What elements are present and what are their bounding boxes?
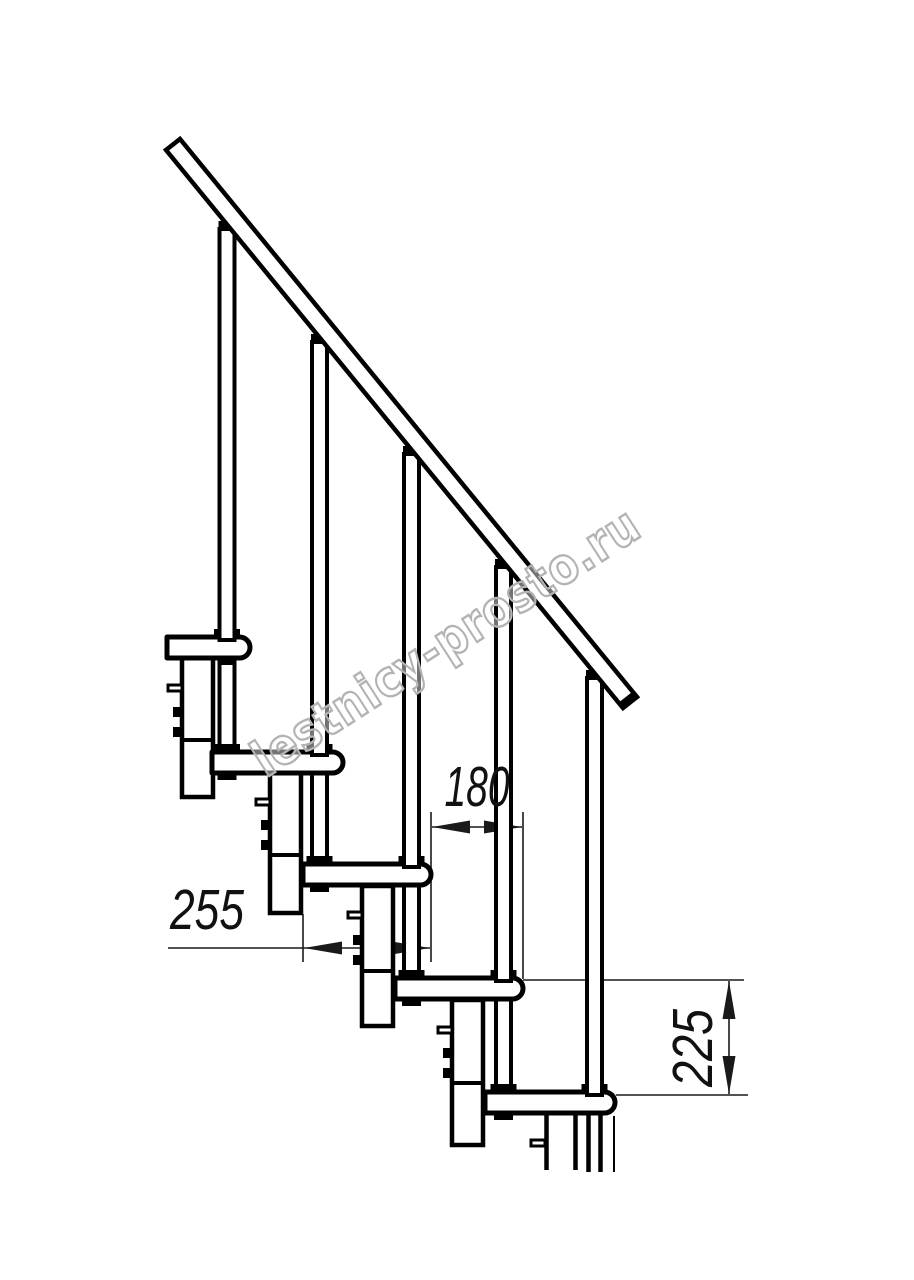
module-clamp — [173, 727, 184, 737]
tread-1 — [167, 637, 250, 658]
module-clamp — [353, 955, 364, 965]
stringer-module-2 — [270, 772, 301, 913]
bolt-nut — [218, 772, 237, 780]
dim-label-180: 180 — [445, 755, 510, 819]
module-flange — [168, 685, 182, 691]
baluster-5 — [587, 678, 602, 1095]
module-flange — [348, 912, 362, 918]
post — [220, 655, 235, 755]
baluster-1 — [220, 229, 235, 640]
post-flange — [491, 1084, 517, 1093]
dim-label-255: 255 — [169, 878, 244, 942]
post-flange — [399, 970, 425, 979]
dim-arrow-left — [304, 942, 342, 955]
stringer-module-1 — [182, 657, 213, 797]
module-clamp — [443, 1048, 454, 1058]
dim-arrow-left — [432, 821, 470, 834]
bolt-nut — [494, 1112, 513, 1120]
module-clamp — [353, 935, 364, 945]
module-flange — [438, 1027, 452, 1033]
post-flange — [307, 856, 333, 865]
post-flange — [214, 744, 240, 753]
bolt-nut — [218, 657, 237, 665]
module-flange — [256, 799, 270, 805]
bolt-nut — [402, 998, 421, 1006]
bolt-nut — [310, 884, 329, 892]
drawing-canvas: lestnicy-prosto.ru 255 180 225 — [0, 0, 914, 1280]
stringer-module-3 — [362, 886, 393, 1026]
post — [496, 998, 511, 1094]
staircase-side-view-drawing: lestnicy-prosto.ru 255 180 225 — [0, 0, 914, 1280]
handrail-body — [166, 139, 637, 708]
module-clamp — [173, 707, 184, 717]
post — [404, 884, 419, 980]
module-clamp — [261, 820, 272, 830]
stringer-module-4 — [452, 1000, 483, 1145]
module-flange — [531, 1140, 545, 1146]
dim-label-225: 225 — [661, 1009, 725, 1088]
module-clamp — [261, 840, 272, 850]
post — [312, 770, 327, 866]
module-clamp — [443, 1068, 454, 1078]
handrail — [166, 139, 637, 708]
